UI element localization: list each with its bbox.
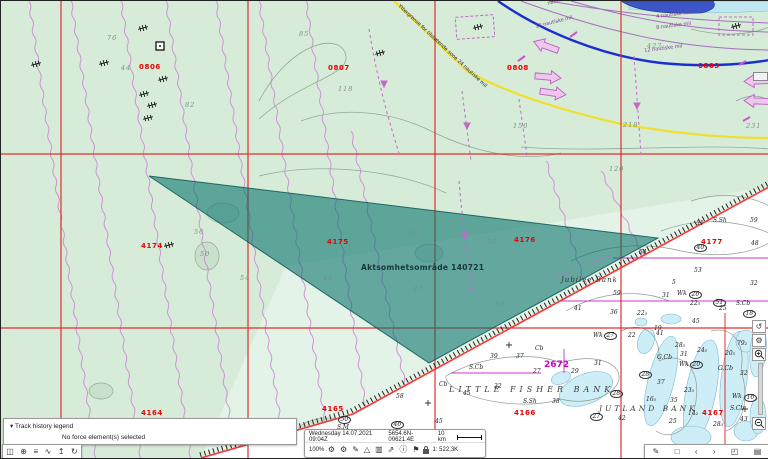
bookmark-icon[interactable]: □ [675, 448, 680, 456]
track-history-legend-panel[interactable]: ▾ Track history legend No force element(… [3, 418, 297, 445]
limit-lines [394, 1, 768, 138]
upload-anchor-icon[interactable]: ↥ [58, 448, 65, 456]
map-settings-icon[interactable]: ⚙ [752, 334, 766, 347]
rotate-view-icon[interactable]: ↺ [752, 320, 766, 333]
beacon-symbol [156, 42, 164, 50]
flag-icon[interactable]: ⚑ [412, 446, 419, 454]
cable-line [29, 1, 96, 458]
chart-portfolio-icon[interactable]: ◫ [6, 448, 14, 456]
map-zoom-controls: ↺ ⚙ [752, 319, 768, 431]
scale-bar [457, 435, 482, 440]
status-scale-distance: 10 km [438, 431, 453, 443]
collapse-caret-icon[interactable]: ▾ [10, 423, 13, 430]
scale-ratio: 1: 522,3K [433, 447, 459, 453]
status-position: 5654.6N-00621.4E [388, 431, 433, 443]
refresh-icon[interactable]: ↻ [71, 448, 78, 456]
fullscreen-icon[interactable]: ◰ [731, 448, 739, 456]
chart-page-icon[interactable]: ▤ [754, 448, 762, 456]
prev-icon[interactable]: ‹ [695, 448, 698, 456]
chart-canvas[interactable] [1, 1, 768, 458]
edit-pencil-icon[interactable]: ✎ [352, 446, 359, 454]
zoom-in-button[interactable] [752, 348, 766, 361]
depth-contours [259, 27, 768, 193]
menu-list-icon[interactable]: ≡ [33, 448, 38, 456]
traffic-arrows [532, 35, 768, 108]
status-bar: Wednesday 14.07.2021 09:04Z 5654.6N-0062… [304, 429, 486, 458]
export-icon[interactable]: ⇗ [388, 446, 395, 454]
legend-title: Track history legend [15, 423, 73, 430]
next-icon[interactable]: › [713, 448, 716, 456]
globe-icon[interactable]: ⊕ [20, 448, 27, 456]
settings-gear-icon[interactable]: ⚙ [328, 446, 335, 454]
lock-icon[interactable] [423, 449, 429, 454]
ecdis-chart-window: Aktsomhetsområde 140721 0806080708080809… [0, 0, 768, 459]
chart-bars-icon[interactable]: ▥ [375, 446, 383, 454]
warning-triangle-icon[interactable]: △ [364, 446, 370, 454]
status-datetime: Wednesday 14.07.2021 09:04Z [309, 431, 384, 443]
legend-message: No force element(s) selected [4, 430, 296, 441]
zoom-out-button[interactable] [752, 417, 766, 430]
zoom-slider-handle[interactable] [753, 72, 768, 81]
zoom-percent: 100% [309, 447, 324, 453]
route-icon[interactable]: ∿ [45, 448, 52, 456]
zoom-slider[interactable] [758, 363, 763, 415]
settings-gear2-icon[interactable]: ⚙ [340, 446, 347, 454]
annotate-pen-icon[interactable]: ✎ [653, 448, 660, 456]
info-icon[interactable]: ⓘ [399, 446, 407, 454]
